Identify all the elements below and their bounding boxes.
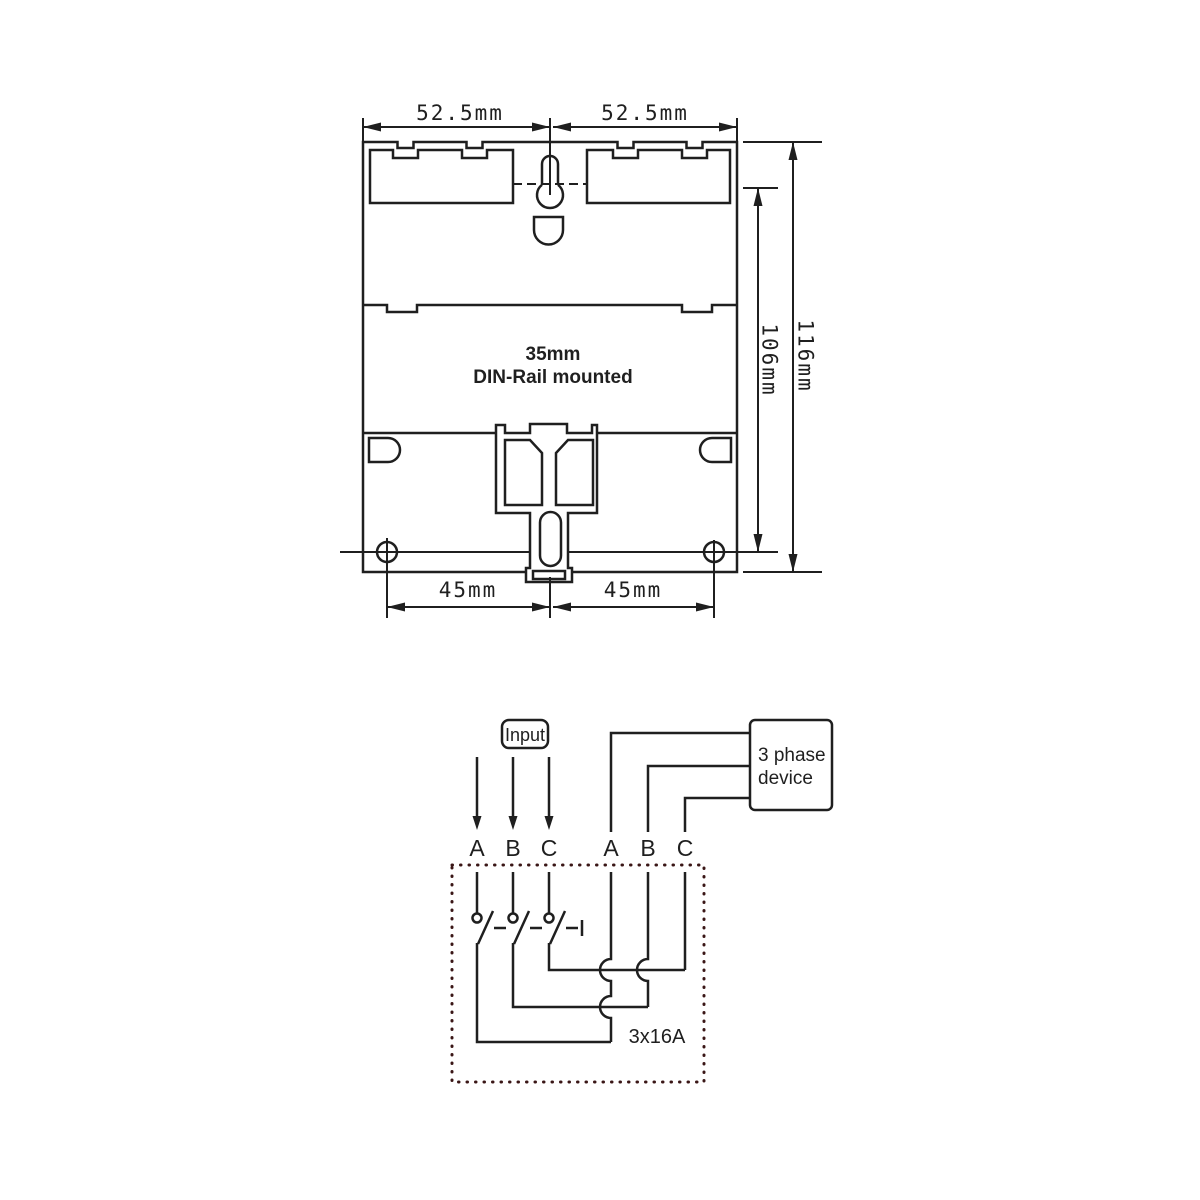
output-phase-b: B: [640, 835, 655, 861]
input-arrows: [473, 757, 554, 830]
arrowhead-down: [473, 816, 482, 830]
output-drop-b: [637, 872, 648, 1007]
technical-diagram: 52.5mm 52.5mm 45mm 45mm 116mm: [0, 0, 1200, 1200]
arrowhead-left: [363, 123, 381, 132]
arrowhead-down: [754, 534, 763, 552]
screw-hole-left: [377, 542, 397, 562]
arrowhead-left: [387, 603, 405, 612]
mount-label-line1: 35mm: [526, 344, 581, 365]
arrowhead-right: [532, 123, 550, 132]
input-phase-a: A: [469, 835, 485, 861]
arrowhead-left: [553, 603, 571, 612]
switch-run-a: [477, 943, 611, 1042]
output-drop-a: [600, 872, 611, 1042]
arrowhead-right: [696, 603, 714, 612]
output-phase-a: A: [603, 835, 619, 861]
switch-enclosure-dotted-border: [452, 865, 704, 1082]
mount-label-line2: DIN-Rail mounted: [473, 367, 632, 388]
output-wire-c: [685, 798, 750, 832]
switch-contact-a: [473, 914, 482, 923]
dimension-bottom: 45mm 45mm: [387, 577, 714, 618]
device-label-line1: 3 phase: [758, 745, 826, 766]
mechanical-drawing: 52.5mm 52.5mm 45mm 45mm 116mm: [340, 101, 822, 618]
switch-run-c: [549, 943, 685, 970]
dimension-label-top-left: 52.5mm: [416, 101, 504, 125]
slot-left: [369, 438, 400, 462]
arrowhead-right: [719, 123, 737, 132]
arrowhead-up: [789, 142, 798, 160]
wiring-diagram: Input A B C A B C 3 phase device: [452, 720, 832, 1082]
output-phase-c: C: [677, 835, 694, 861]
screw-hole-right: [704, 542, 724, 562]
dimension-label-bottom-left: 45mm: [439, 578, 498, 602]
arrowhead-down: [545, 816, 554, 830]
arrowhead-down: [509, 816, 518, 830]
dimension-right: 116mm 106mm: [743, 142, 822, 572]
input-phase-c: C: [541, 835, 558, 861]
dimension-label-106: 106mm: [758, 323, 782, 396]
switch-rating-label: 3x16A: [629, 1026, 686, 1048]
dome-cutout: [534, 217, 563, 244]
dimension-label-top-right: 52.5mm: [601, 101, 689, 125]
slot-right: [700, 438, 731, 462]
switch-run-b: [513, 943, 648, 1007]
arrowhead-right: [532, 603, 550, 612]
diagram-page: 52.5mm 52.5mm 45mm 45mm 116mm: [0, 0, 1200, 1200]
arrowhead-up: [754, 188, 763, 206]
input-phase-b: B: [505, 835, 520, 861]
switch-contact-b: [509, 914, 518, 923]
din-clip-outline: [496, 424, 597, 582]
terminal-block-left: [370, 150, 513, 203]
output-wire-a: [611, 733, 750, 832]
switch-contact-c: [545, 914, 554, 923]
device-label-line2: device: [758, 768, 813, 789]
arrowhead-left: [553, 123, 571, 132]
dimension-label-116: 116mm: [794, 319, 818, 392]
mid-body-line: [363, 305, 737, 312]
dimension-label-bottom-right: 45mm: [604, 578, 663, 602]
terminal-block-right: [587, 150, 730, 203]
arrowhead-down: [789, 554, 798, 572]
input-label: Input: [505, 725, 545, 745]
